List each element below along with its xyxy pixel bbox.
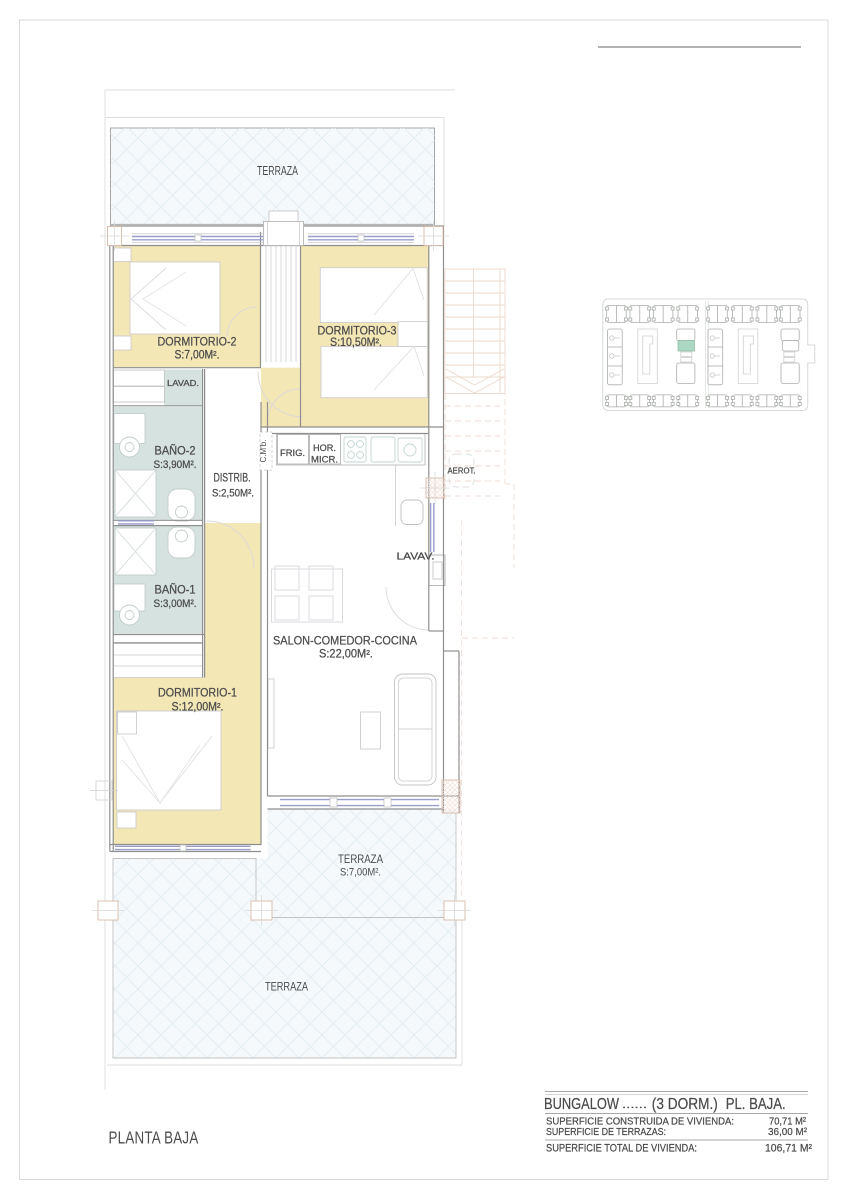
svg-text:PLANTA BAJA: PLANTA BAJA bbox=[109, 1128, 199, 1148]
svg-text:MICR.: MICR. bbox=[311, 455, 338, 465]
svg-text:BUNGALOW: BUNGALOW bbox=[544, 1096, 619, 1113]
svg-text:106,71 M²: 106,71 M² bbox=[765, 1142, 812, 1154]
svg-text:FRIG.: FRIG. bbox=[280, 448, 305, 458]
svg-text:S:2,50M².: S:2,50M². bbox=[212, 488, 254, 500]
svg-text:TERRAZA: TERRAZA bbox=[257, 164, 298, 178]
svg-text:LAVAD.: LAVAD. bbox=[167, 378, 199, 388]
svg-text:S:10,50M².: S:10,50M². bbox=[330, 337, 382, 349]
svg-text:BAÑO-2: BAÑO-2 bbox=[155, 445, 196, 458]
svg-text:S:22,00M².: S:22,00M². bbox=[319, 649, 373, 661]
svg-text:S:7,00M².: S:7,00M². bbox=[175, 350, 220, 362]
svg-text:LAVAV.: LAVAV. bbox=[397, 552, 435, 563]
svg-text:DISTRIB.: DISTRIB. bbox=[214, 473, 251, 485]
svg-text:C.M'b.: C.M'b. bbox=[259, 440, 268, 463]
svg-text:HOR.: HOR. bbox=[313, 443, 336, 453]
svg-text:36,00 M²: 36,00 M² bbox=[768, 1126, 807, 1138]
svg-text:SUPERFICIE TOTAL DE VIVIENDA:: SUPERFICIE TOTAL DE VIVIENDA: bbox=[546, 1142, 697, 1154]
svg-text:......: ...... bbox=[622, 1099, 647, 1111]
svg-text:AEROT.: AEROT. bbox=[448, 466, 476, 476]
svg-text:SALON-COMEDOR-COCINA: SALON-COMEDOR-COCINA bbox=[273, 634, 417, 648]
svg-text:TERRAZA: TERRAZA bbox=[338, 854, 383, 866]
svg-text:SUPERFICIE DE TERRAZAS:: SUPERFICIE DE TERRAZAS: bbox=[546, 1126, 666, 1138]
svg-text:S:7,00M².: S:7,00M². bbox=[340, 867, 381, 879]
svg-text:S:12,00M².: S:12,00M². bbox=[172, 702, 224, 714]
svg-text:(3 DORM.): (3 DORM.) bbox=[652, 1096, 718, 1113]
svg-text:DORMITORIO-3: DORMITORIO-3 bbox=[318, 324, 397, 338]
svg-text:DORMITORIO-2: DORMITORIO-2 bbox=[158, 335, 237, 349]
svg-text:S:3,90M².: S:3,90M². bbox=[154, 459, 197, 471]
svg-text:BAÑO-1: BAÑO-1 bbox=[155, 584, 196, 597]
svg-text:PL. BAJA.: PL. BAJA. bbox=[726, 1096, 786, 1113]
svg-text:TERRAZA: TERRAZA bbox=[265, 982, 308, 994]
svg-text:DORMITORIO-1: DORMITORIO-1 bbox=[158, 686, 237, 700]
svg-text:S:3,00M².: S:3,00M². bbox=[154, 598, 197, 610]
